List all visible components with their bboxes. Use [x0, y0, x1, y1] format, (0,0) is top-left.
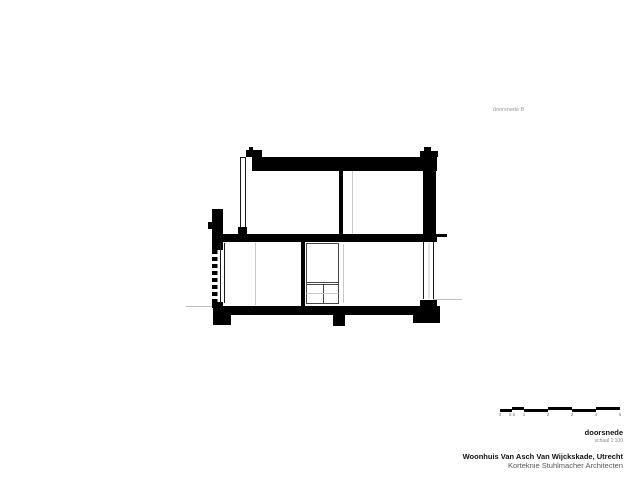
mid-floor-slab-extension — [437, 234, 447, 237]
upper-window-sill — [238, 227, 247, 234]
ground-slab — [215, 306, 438, 315]
parapet-nub — [208, 222, 212, 229]
pier-left — [213, 306, 231, 325]
left-facade — [208, 209, 225, 308]
upper-window — [238, 157, 247, 234]
scale-tick-label: 1 — [523, 412, 526, 417]
scale-bar-segment — [572, 409, 596, 412]
scale-bar-segment — [524, 409, 548, 412]
ground-floor-interior — [301, 242, 339, 306]
pier-right — [413, 306, 440, 323]
louver-slat — [212, 292, 218, 296]
roof-cap-tick-left — [249, 147, 253, 150]
left-parapet — [212, 209, 223, 250]
louver-slat — [212, 271, 218, 275]
intermediate-floor — [212, 234, 447, 242]
scale-bar-segment — [596, 407, 620, 410]
scale-tick-label: 2 — [547, 412, 550, 417]
scale-tick-label: 0.5 — [509, 412, 515, 417]
project-name: Woonhuis Van Asch Van Wijckskade, Utrech… — [463, 453, 623, 462]
louver-slat — [212, 264, 218, 268]
center-wall-ground — [301, 242, 305, 306]
mid-wall-upper — [339, 171, 343, 234]
louver-slat — [212, 257, 218, 261]
drawing-title: doorsnede — [463, 429, 623, 438]
mid-floor-slab — [212, 234, 437, 242]
roof-cap-step-right — [424, 147, 431, 151]
scale-tick-label: 4 — [595, 412, 598, 417]
scale-tick-label: 0 — [499, 412, 502, 417]
scale-tick-label: 5 — [619, 412, 622, 417]
ground-right-window — [424, 242, 434, 299]
scale-bar-segment — [548, 407, 572, 410]
scale-tick-label: 3 — [571, 412, 574, 417]
right-wall-upper — [423, 157, 436, 234]
roof — [246, 147, 438, 171]
louver-slat — [212, 278, 218, 282]
architect-name: Korteknie Stuhlmacher Architecten — [463, 462, 623, 471]
stair-box-outline — [307, 244, 339, 304]
roof-cap-right — [420, 151, 438, 157]
drawing-scale: schaal 1:100 — [463, 438, 623, 444]
title-block: doorsnede schaal 1:100 Woonhuis Van Asch… — [463, 429, 623, 471]
louver-slat — [212, 285, 218, 289]
scale-bar: 0 0.5 1 2 3 4 5 — [500, 403, 621, 419]
roof-slab — [252, 157, 437, 171]
sheet: doorsnede B 0 0.5 1 2 3 4 5 doorsnede sc… — [0, 0, 640, 480]
scale-bar-segment — [512, 407, 524, 410]
section-label: doorsnede B — [493, 107, 524, 113]
scale-bar-baseline — [500, 409, 620, 410]
pier-center — [333, 315, 345, 326]
louver-slat — [212, 250, 218, 254]
roof-cap-left — [246, 150, 262, 157]
